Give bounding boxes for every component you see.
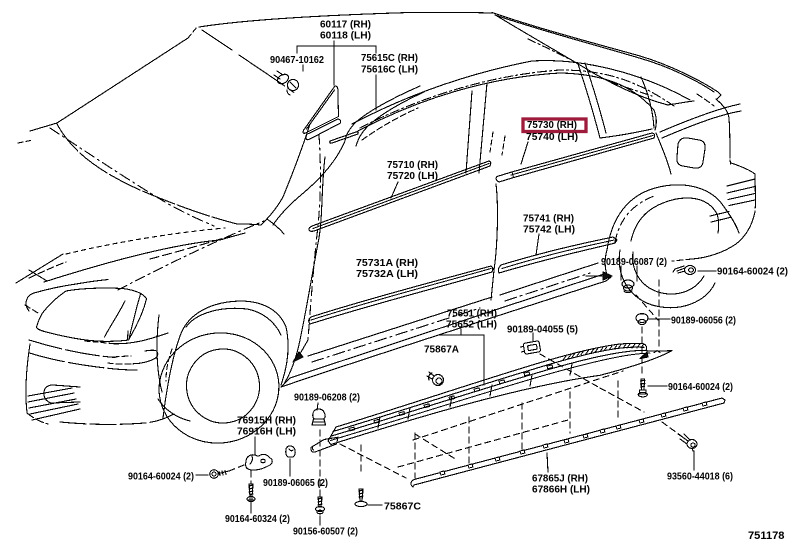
svg-text:75652 (LH): 75652 (LH) xyxy=(446,319,497,330)
svg-text:90164-60024 (2): 90164-60024 (2) xyxy=(717,267,788,278)
svg-text:90467-10162: 90467-10162 xyxy=(270,55,324,66)
svg-text:93560-44018 (6): 93560-44018 (6) xyxy=(667,472,733,483)
svg-text:75616C (LH): 75616C (LH) xyxy=(361,64,418,75)
svg-text:90164-60324 (2): 90164-60324 (2) xyxy=(225,514,290,525)
svg-text:67866H (LH): 67866H (LH) xyxy=(532,485,590,496)
svg-text:90189-04055 (5): 90189-04055 (5) xyxy=(507,324,578,335)
svg-text:75651 (RH): 75651 (RH) xyxy=(447,309,497,320)
svg-text:76916H (LH): 76916H (LH) xyxy=(237,427,296,438)
svg-text:751178: 751178 xyxy=(748,530,785,542)
svg-text:90156-60507 (2): 90156-60507 (2) xyxy=(293,527,358,538)
svg-text:76915H (RH): 76915H (RH) xyxy=(237,416,296,427)
svg-text:75740 (LH): 75740 (LH) xyxy=(526,132,578,143)
svg-text:75867C: 75867C xyxy=(384,502,422,513)
svg-text:67865J (RH): 67865J (RH) xyxy=(532,474,588,485)
svg-text:90164-60024 (2): 90164-60024 (2) xyxy=(128,472,194,483)
svg-text:75730 (RH): 75730 (RH) xyxy=(527,120,577,131)
svg-text:75615C (RH): 75615C (RH) xyxy=(361,53,418,64)
svg-text:75732A (LH): 75732A (LH) xyxy=(356,269,418,280)
svg-text:75731A (RH): 75731A (RH) xyxy=(356,258,418,269)
svg-text:90164-60024 (2): 90164-60024 (2) xyxy=(668,382,733,393)
svg-text:60118 (LH): 60118 (LH) xyxy=(320,31,371,42)
svg-text:75720 (LH): 75720 (LH) xyxy=(387,171,438,182)
svg-text:60117 (RH): 60117 (RH) xyxy=(320,20,371,31)
svg-text:90189-06065 (2): 90189-06065 (2) xyxy=(263,478,328,489)
svg-text:75741 (RH): 75741 (RH) xyxy=(523,214,574,225)
svg-text:75710 (RH): 75710 (RH) xyxy=(387,160,438,171)
svg-text:75867A: 75867A xyxy=(424,345,460,356)
svg-text:75742 (LH): 75742 (LH) xyxy=(523,225,575,236)
svg-text:90189-06056 (2): 90189-06056 (2) xyxy=(671,316,736,327)
svg-text:90189-06208 (2): 90189-06208 (2) xyxy=(294,393,360,404)
svg-text:90189-06087 (2): 90189-06087 (2) xyxy=(601,257,667,268)
